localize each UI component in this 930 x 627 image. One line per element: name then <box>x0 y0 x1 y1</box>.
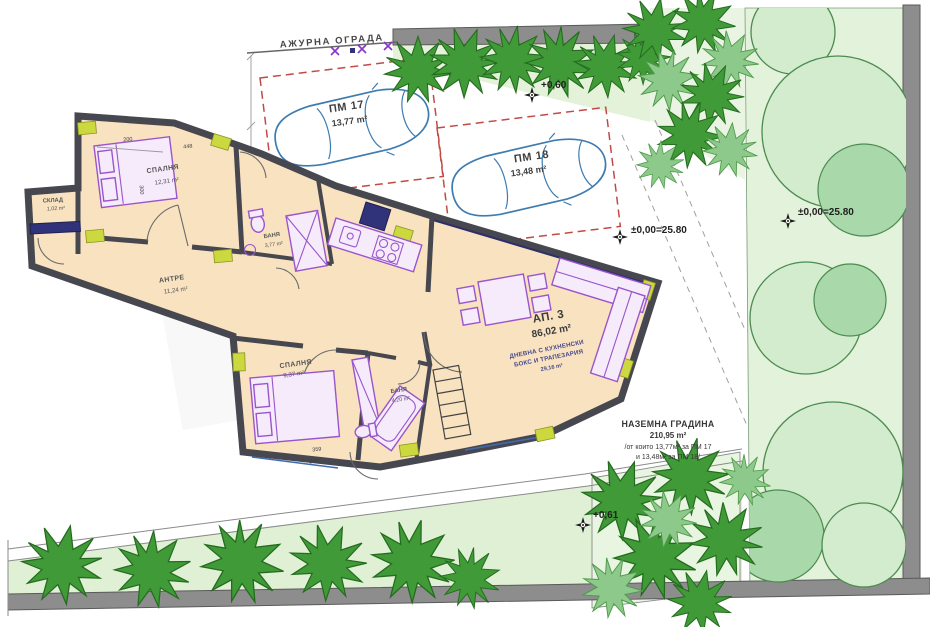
storage-shelf <box>30 221 80 234</box>
dim-359: 359 <box>312 447 322 454</box>
elevation-mid: ±0,00=25.80 <box>631 225 687 236</box>
floor-plan: АЖУРНА ОГРАДА ПМ 17 13,77 m² ПМ 18 13,48… <box>0 0 930 627</box>
fence-post-icon <box>350 48 355 53</box>
tree-canopy <box>814 264 886 336</box>
garden-area: 210,95 m² <box>650 431 687 440</box>
dim-300: 300 <box>138 185 145 195</box>
dim-540: 540 <box>309 459 319 466</box>
elevation-bottom: +0,61 <box>593 510 619 521</box>
bed-2 <box>250 371 339 444</box>
garden-title: НАЗЕМНА ГРАДИНА <box>621 419 714 429</box>
dim-448: 448 <box>183 144 193 151</box>
tree-canopy <box>822 503 906 587</box>
dim-200: 200 <box>123 137 133 144</box>
garden-note-1: /от които 13,77м² за ПМ 17 <box>625 444 712 451</box>
floor-plan-svg: АЖУРНА ОГРАДА ПМ 17 13,77 m² ПМ 18 13,48… <box>0 0 930 627</box>
tree-canopy <box>818 144 910 236</box>
elevation-right: ±0,00=25.80 <box>798 207 854 218</box>
right-boundary-wall <box>903 5 920 585</box>
garden-note-2: и 13,48м² за ПМ 18/ <box>636 454 700 461</box>
elevation-top: +0,60 <box>541 80 567 91</box>
room-label-storage: СКЛАД <box>43 197 64 204</box>
room-area-storage: 1,02 m² <box>47 206 66 213</box>
